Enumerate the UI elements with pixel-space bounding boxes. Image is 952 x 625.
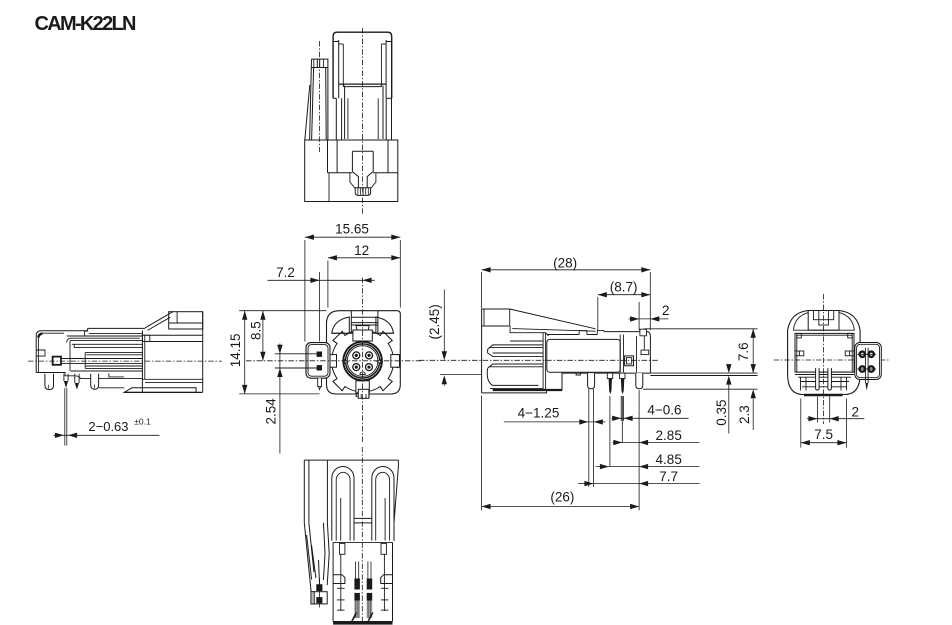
svg-text:15.65: 15.65 xyxy=(335,221,369,236)
svg-text:7.2: 7.2 xyxy=(276,265,295,280)
svg-text:8.5: 8.5 xyxy=(248,321,263,340)
svg-text:7.6: 7.6 xyxy=(736,342,751,361)
svg-text:14.15: 14.15 xyxy=(228,334,243,368)
svg-text:2: 2 xyxy=(662,303,670,318)
svg-text:(26): (26) xyxy=(550,489,574,504)
svg-text:2−0.63: 2−0.63 xyxy=(88,419,128,434)
svg-text:2.85: 2.85 xyxy=(656,428,682,443)
svg-text:4−0.6: 4−0.6 xyxy=(647,402,681,417)
svg-text:4−1.25: 4−1.25 xyxy=(518,406,560,421)
svg-text:2.54: 2.54 xyxy=(263,398,278,425)
svg-text:(8.7): (8.7) xyxy=(610,279,638,294)
svg-text:(28): (28) xyxy=(553,255,577,270)
svg-text:7.5: 7.5 xyxy=(814,427,833,442)
svg-text:12: 12 xyxy=(354,243,369,258)
svg-text:7.7: 7.7 xyxy=(659,469,678,484)
svg-text:0.35: 0.35 xyxy=(714,399,729,425)
svg-text:2.3: 2.3 xyxy=(737,405,752,424)
svg-text:±0.1: ±0.1 xyxy=(134,417,151,427)
svg-text:4.85: 4.85 xyxy=(656,452,682,467)
svg-text:(2.45): (2.45) xyxy=(427,304,442,339)
svg-text:2: 2 xyxy=(851,404,859,419)
svg-text:CAM-K22LN: CAM-K22LN xyxy=(35,13,137,35)
